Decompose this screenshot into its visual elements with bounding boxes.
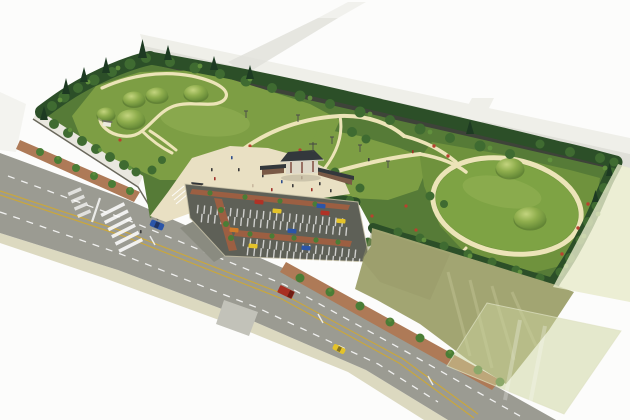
- mound: [496, 158, 525, 180]
- mound: [97, 108, 116, 123]
- site-plan-rendering: [0, 0, 630, 420]
- mound: [123, 92, 146, 109]
- mound: [117, 110, 146, 131]
- mound: [184, 85, 209, 103]
- mound: [146, 88, 169, 105]
- rendering-canvas: [0, 0, 630, 420]
- mound: [514, 207, 547, 231]
